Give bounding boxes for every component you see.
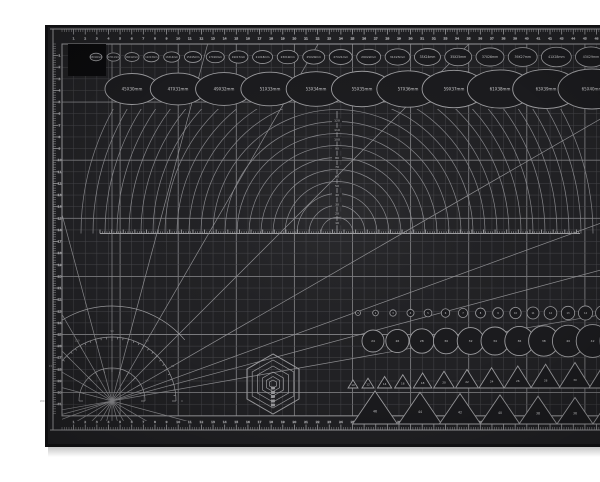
ellipse-label-large: 47X31mm: [168, 87, 189, 92]
ellipse-label-small: 25X20mm: [307, 55, 322, 59]
ellipse-label-small: 19X17mm: [232, 55, 246, 59]
ellipse-label-small: 13X14mm: [165, 56, 178, 59]
circle-label-small: 10: [514, 312, 518, 315]
ellipse-label-large: 59X37mm: [444, 87, 465, 92]
ellipse-label-small: 07X11mm: [108, 56, 120, 59]
ruler-number-bottom: 23: [327, 420, 331, 424]
protractor-degree-label: 180: [40, 399, 45, 403]
ruler-number-top: 11: [188, 37, 192, 41]
ruler-number-left: 18: [58, 251, 62, 255]
ruler-number-top: 34: [455, 37, 459, 41]
ruler-number-top: 10: [176, 37, 180, 41]
triangle-label-large: 44: [418, 410, 422, 414]
ruler-number-top: 20: [292, 37, 296, 41]
ruler-number-left: 28: [58, 367, 62, 371]
ruler-number-top: 39: [513, 37, 517, 41]
arc-scale-number: 20: [335, 212, 339, 216]
triangle-label-small: 20: [442, 380, 446, 384]
triangle-label-large: 36: [573, 412, 577, 416]
ellipse-label-small: 15X15mm: [187, 55, 201, 59]
ruler-number-top: 7: [142, 37, 144, 41]
ruler-number-top: 13: [211, 37, 215, 41]
protractor-degree-label: 90: [110, 329, 114, 333]
ellipse-label-small: 05X10mm: [90, 56, 101, 59]
ruler-number-bottom: 9: [166, 420, 168, 424]
ruler-number-top: 31: [420, 37, 424, 41]
ruler-number-bottom: 8: [154, 420, 156, 424]
ellipse-label-small: 17X16mm: [209, 55, 223, 59]
ellipse-label-large: 55X35mm: [352, 87, 373, 92]
ruler-number-left: 31: [58, 402, 62, 406]
ruler-number-left: 5: [59, 100, 61, 104]
ruler-number-top: 38: [502, 37, 506, 41]
ruler-number-bottom: 7: [142, 420, 144, 424]
ruler-number-top: 46: [595, 37, 599, 41]
triangle-label-large: 38: [536, 411, 540, 415]
circle-label-small: 12: [549, 312, 553, 315]
ruler-number-top: 17: [258, 37, 262, 41]
ruler-number-left: 2: [59, 65, 61, 69]
arc-scale-number: 70: [335, 165, 339, 169]
ruler-number-top: 28: [385, 37, 389, 41]
circle-label-large: 30: [444, 339, 448, 343]
ruler-number-left: 9: [59, 147, 61, 151]
arc-scale-number: 90: [335, 147, 339, 151]
ellipse-label-small: 33X24mm: [420, 55, 436, 59]
triangle-label-small: 16: [401, 381, 405, 385]
ellipse-row-large: 45X30mm47X31mm49X32mm51X33mm53X34mm55X35…: [105, 69, 600, 109]
ellipse-label-small: 43X29mm: [583, 55, 600, 59]
ruler-number-top: 25: [351, 37, 355, 41]
ruler-number-bottom: 19: [281, 420, 285, 424]
ruler-number-top: 12: [200, 37, 204, 41]
triangle-label-small: 24: [490, 379, 494, 383]
arc-scale-number: 120: [334, 119, 340, 123]
ruler-number-left: 1: [59, 54, 61, 58]
triangle-label-small: 18: [421, 381, 425, 385]
ruler-number-top: 23: [327, 37, 331, 41]
triangle-label-small: 12: [366, 382, 370, 386]
ruler-number-top: 19: [281, 37, 285, 41]
triangle-label-small: 28: [544, 378, 548, 382]
ruler-number-bottom: 2: [84, 420, 86, 424]
ruler-number-left: 25: [58, 333, 62, 337]
ruler-number-bottom: 24: [339, 420, 343, 424]
ellipse-label-small: 11X13mm: [145, 56, 158, 59]
ruler-number-top: 30: [409, 37, 413, 41]
ellipse-label-large: 61X38mm: [490, 87, 511, 92]
ruler-number-top: 40: [525, 37, 529, 41]
ellipse-label-small: 23X19mm: [281, 55, 295, 59]
ruler-number-top: 5: [119, 37, 121, 41]
triangle-label-small: 26: [516, 379, 520, 383]
ruler-number-bottom: 12: [200, 420, 204, 424]
circle-label-large: 36: [517, 339, 521, 343]
ruler-number-left: 3: [59, 77, 61, 81]
ruler-number-left: 27: [58, 356, 62, 360]
protractor-degree-label: 150: [49, 364, 54, 368]
ruler-number-left: 6: [59, 112, 61, 116]
arc-scale-number: 30: [335, 202, 339, 206]
ruler-number-bottom: 3: [96, 420, 98, 424]
ruler-number-left: 7: [59, 123, 61, 127]
ruler-number-top: 14: [223, 37, 227, 41]
ruler-number-left: 4: [59, 88, 61, 92]
triangle-label-small: 22: [465, 380, 469, 384]
ruler-number-top: 15: [234, 37, 238, 41]
ellipse-label-small: 41X28mm: [548, 55, 565, 59]
ruler-number-left: 15: [58, 216, 62, 220]
ruler-number-bottom: 10: [176, 420, 180, 424]
ruler-number-top: 35: [467, 37, 471, 41]
triangle-label-large: 42: [458, 410, 462, 414]
cutting-mat-photo: 1122334455667788991010111112121313141415…: [40, 16, 600, 466]
triangle-label-small: 14: [383, 382, 387, 386]
ruler-number-bottom: 1: [73, 420, 75, 424]
ruler-number-left: 16: [58, 228, 62, 232]
ruler-number-top: 37: [490, 37, 494, 41]
ruler-number-bottom: 14: [223, 420, 227, 424]
ellipse-label-small: 21X18mm: [256, 55, 270, 59]
ruler-number-bottom: 17: [258, 420, 262, 424]
ruler-number-left: 26: [58, 344, 62, 348]
arc-scale-number: 10: [335, 221, 339, 225]
ruler-number-left: 30: [58, 391, 62, 395]
hexagon-scale-number: 30: [271, 403, 275, 407]
circle-label-small: 11: [531, 312, 535, 315]
ruler-number-bottom: 16: [246, 420, 250, 424]
ruler-number-top: 33: [444, 37, 448, 41]
ruler-number-top: 29: [397, 37, 401, 41]
ellipse-label-large: 53X34mm: [306, 87, 327, 92]
ruler-number-top: 41: [537, 37, 541, 41]
arc-scale-number: 110: [334, 128, 340, 132]
arc-scale-number: 50: [335, 184, 339, 188]
ruler-number-top: 42: [548, 37, 552, 41]
circle-label-large: 26: [395, 339, 399, 343]
ruler-number-bottom: 21: [304, 420, 308, 424]
ruler-number-left: 24: [58, 321, 62, 325]
arc-scale-number: 100: [334, 137, 340, 141]
ruler-number-top: 6: [131, 37, 133, 41]
ruler-number-left: 14: [58, 205, 62, 209]
ruler-number-left: 22: [58, 298, 62, 302]
circle-label-large: 24: [371, 339, 375, 343]
ruler-number-bottom: 13: [211, 420, 215, 424]
ruler-number-left: 21: [58, 286, 62, 290]
ruler-number-left: 11: [58, 170, 62, 174]
ruler-number-left: 10: [58, 158, 62, 162]
ruler-number-left: 17: [58, 240, 62, 244]
triangle-label-large: 46: [373, 409, 377, 413]
ruler-number-top: 9: [166, 37, 168, 41]
ruler-number-top: 44: [571, 37, 575, 41]
circle-label-large: 32: [469, 339, 473, 343]
triangle-label-small: 10: [351, 383, 355, 387]
ellipse-label-large: 57X36mm: [398, 87, 419, 92]
ruler-number-left: 29: [58, 379, 62, 383]
circle-label-small: 13: [566, 312, 570, 315]
ruler-number-top: 22: [316, 37, 320, 41]
ellipse-label-large: 45X30mm: [122, 87, 143, 92]
ruler-number-top: 32: [432, 37, 436, 41]
triangle-label-large: 40: [498, 411, 502, 415]
ruler-number-bottom: 5: [119, 420, 121, 424]
ellipse-label-small: 35X25mm: [450, 55, 466, 59]
ellipse-label-small: 27X21mm: [333, 55, 348, 59]
ruler-number-bottom: 11: [188, 420, 192, 424]
protractor-degree-label: 60: [145, 338, 149, 342]
circle-label-large: 34: [493, 339, 497, 343]
ruler-number-top: 2: [84, 37, 86, 41]
ruler-number-bottom: 20: [292, 420, 296, 424]
ruler-number-top: 21: [304, 37, 308, 41]
circle-label-large: 42: [591, 339, 595, 343]
arc-scale-number: 60: [335, 175, 339, 179]
cutting-mat-svg: 1122334455667788991010111112121313141415…: [40, 16, 600, 466]
ruler-number-top: 36: [478, 37, 482, 41]
mat-shadow: [48, 447, 600, 457]
ruler-number-left: 19: [58, 263, 62, 267]
arc-scale-number: 40: [335, 193, 339, 197]
circle-label-small: 14: [584, 312, 588, 315]
ruler-number-top: 26: [362, 37, 366, 41]
ruler-number-left: 23: [58, 309, 62, 313]
triangle-label-small: 30: [573, 378, 577, 382]
ruler-number-top: 27: [374, 37, 378, 41]
ruler-number-bottom: 22: [316, 420, 320, 424]
arc-scale-number: 80: [335, 156, 339, 160]
ellipse-label-small: 31X23mm: [390, 55, 405, 59]
ruler-number-left: 12: [58, 181, 62, 185]
ellipse-label-small: 37X26mm: [482, 55, 498, 59]
ruler-number-bottom: 18: [269, 420, 273, 424]
ellipse-label-large: 51X33mm: [260, 87, 281, 92]
ruler-number-top: 43: [560, 37, 564, 41]
circle-label-large: 40: [566, 339, 570, 343]
ellipse-label-small: 39X27mm: [514, 55, 531, 59]
ruler-number-left: 8: [59, 135, 61, 139]
ruler-number-left: 20: [58, 274, 62, 278]
protractor-degree-label: 30: [171, 364, 175, 368]
ruler-number-top: 8: [154, 37, 156, 41]
circle-label-large: 38: [542, 339, 546, 343]
ruler-number-top: 45: [583, 37, 587, 41]
ellipse-label-small: 29X22mm: [361, 55, 376, 59]
ruler-number-top: 1: [73, 37, 75, 41]
ruler-number-bottom: 4: [108, 420, 110, 424]
ellipse-label-small: 09X12mm: [126, 56, 139, 59]
ellipse-label-large: 65X40mm: [582, 87, 600, 92]
ruler-number-top: 4: [108, 37, 110, 41]
ellipse-label-large: 63X39mm: [536, 87, 557, 92]
ruler-number-top: 18: [269, 37, 273, 41]
ruler-number-top: 16: [246, 37, 250, 41]
ruler-number-top: 24: [339, 37, 343, 41]
ruler-number-top: 3: [96, 37, 98, 41]
protractor-degree-label: 120: [75, 338, 80, 342]
ellipse-label-large: 49X32mm: [214, 87, 235, 92]
ruler-number-bottom: 15: [234, 420, 238, 424]
ruler-number-left: 13: [58, 193, 62, 197]
circle-label-large: 28: [420, 339, 424, 343]
